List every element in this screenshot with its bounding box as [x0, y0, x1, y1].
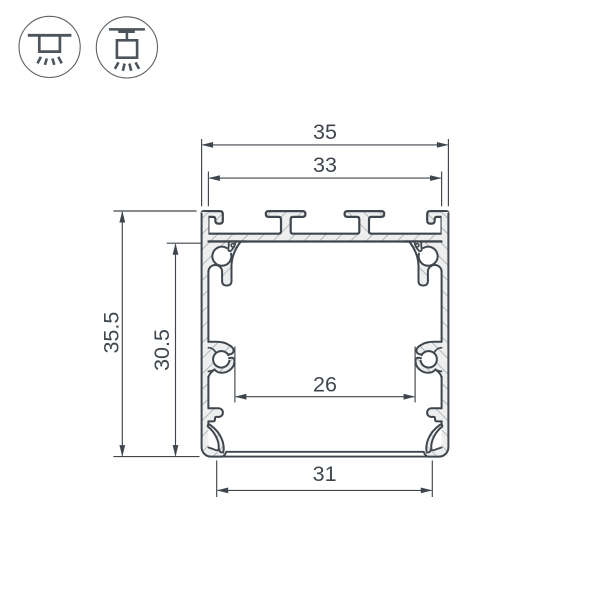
svg-text:31: 31	[313, 462, 337, 486]
svg-text:30.5: 30.5	[150, 329, 174, 371]
svg-text:35: 35	[313, 120, 337, 144]
svg-text:33: 33	[313, 153, 337, 177]
svg-text:35.5: 35.5	[99, 312, 123, 354]
svg-text:26: 26	[313, 372, 337, 396]
